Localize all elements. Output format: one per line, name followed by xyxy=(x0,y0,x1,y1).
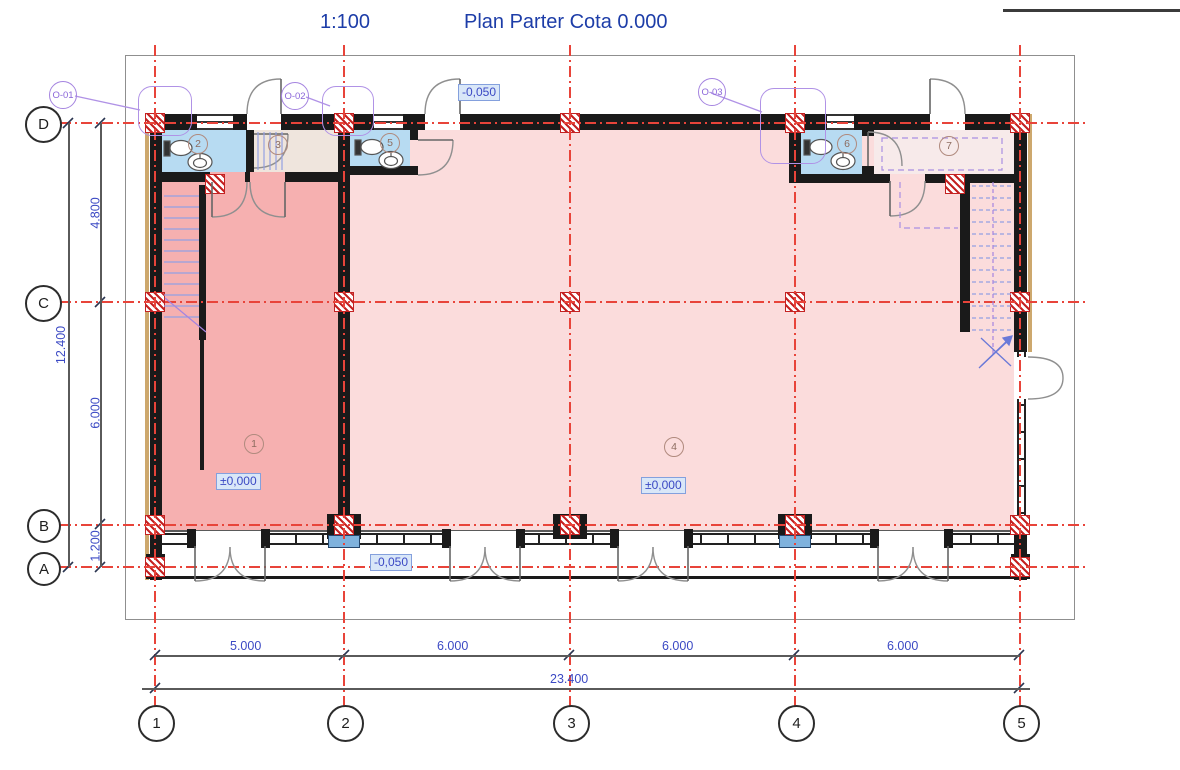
wall-porch-bottom xyxy=(150,576,1027,579)
door-gap-porch-1 xyxy=(195,531,265,547)
door-gap-right xyxy=(1016,357,1027,399)
wall-stair-left-thin xyxy=(200,340,204,470)
dim-line-left-outer xyxy=(68,123,70,567)
wall-room2-3-divider xyxy=(246,130,254,172)
grid-bubble-4: 4 xyxy=(778,705,815,742)
plan-scale: 1:100 xyxy=(320,11,370,34)
top-right-rule xyxy=(1003,9,1180,12)
wall-room5-bottom xyxy=(350,166,418,175)
wall-stair-left-thick xyxy=(199,185,206,340)
elevation-label-top: -0,050 xyxy=(458,84,500,101)
door-jamb xyxy=(944,529,953,548)
window-tag-O03: O-03 xyxy=(698,78,726,106)
dim-line-bottom-outer xyxy=(142,688,1030,690)
grid-bubble-A: A xyxy=(27,552,61,586)
grid-bubble-1: 1 xyxy=(138,705,175,742)
elevation-label-porch: -0,050 xyxy=(370,554,412,571)
window-tag-box-3 xyxy=(760,88,826,164)
wall-room5-right xyxy=(410,130,418,140)
wall-room6-7-divider xyxy=(862,130,874,136)
wall-wc-bottom xyxy=(285,172,350,182)
elevation-label-room4: ±0,000 xyxy=(641,477,686,494)
dim-left-total: 12.400 xyxy=(54,326,68,364)
dim-left-1: 4.800 xyxy=(89,197,103,228)
wall-room67-bottom xyxy=(789,174,890,183)
room-label-7: 7 xyxy=(939,136,959,156)
elevation-label-room1: ±0,000 xyxy=(216,473,261,490)
room-5-floor xyxy=(350,130,410,170)
door-jamb xyxy=(261,529,270,548)
column xyxy=(945,174,965,194)
grid-line-B xyxy=(60,524,1085,526)
window-tag-O02: O-02 xyxy=(281,82,309,110)
room-label-1: 1 xyxy=(244,434,264,454)
grid-bubble-B: B xyxy=(27,509,61,543)
grid-line-2 xyxy=(343,45,345,707)
grid-bubble-3: 3 xyxy=(553,705,590,742)
dim-bottom-total: 23.400 xyxy=(550,672,588,686)
door-gap-porch-2 xyxy=(450,531,520,547)
door-jamb xyxy=(610,529,619,548)
dim-left-3: 1.200 xyxy=(89,530,103,561)
dim-bottom-3: 6.000 xyxy=(662,639,693,653)
door-jamb xyxy=(516,529,525,548)
wall-stair-right xyxy=(960,176,970,332)
column xyxy=(205,174,225,194)
grid-line-1 xyxy=(154,45,156,707)
wall-left xyxy=(150,114,162,580)
door-gap-porch-3 xyxy=(618,531,688,547)
wall-room6-7-divider xyxy=(862,166,874,183)
floor-plan-canvas: 1:100 Plan Parter Cota 0.000 xyxy=(0,0,1180,770)
room-label-3: 3 xyxy=(268,135,288,155)
room-4-floor xyxy=(350,130,1014,532)
room-3-floor xyxy=(254,130,338,172)
door-jamb xyxy=(870,529,879,548)
window-tag-box-2 xyxy=(322,86,374,136)
door-jamb xyxy=(684,529,693,548)
grid-line-5 xyxy=(1019,45,1021,707)
room-label-5: 5 xyxy=(380,133,400,153)
door-jamb xyxy=(442,529,451,548)
dim-bottom-4: 6.000 xyxy=(887,639,918,653)
wall-wc-bottom xyxy=(162,172,210,182)
insulation-right xyxy=(1028,114,1032,352)
room-label-2: 2 xyxy=(188,134,208,154)
insulation-left xyxy=(145,114,149,580)
grid-line-A xyxy=(60,566,1085,568)
dim-line-bottom-inner xyxy=(155,655,1020,657)
grid-bubble-5: 5 xyxy=(1003,705,1040,742)
room-label-4: 4 xyxy=(664,437,684,457)
dim-bottom-2: 6.000 xyxy=(437,639,468,653)
grid-line-D xyxy=(60,122,1085,124)
dim-line-left-inner xyxy=(100,123,102,567)
room-label-6: 6 xyxy=(837,134,857,154)
room-1-floor xyxy=(162,130,338,532)
grid-bubble-2: 2 xyxy=(327,705,364,742)
grid-bubble-C: C xyxy=(25,285,62,322)
window-tag-O01: O-01 xyxy=(49,81,77,109)
door-jamb xyxy=(187,529,196,548)
door-gap-porch-4 xyxy=(878,531,948,547)
wall-wc-bottom xyxy=(245,172,250,182)
plan-title: Plan Parter Cota 0.000 xyxy=(464,11,667,34)
grid-line-3 xyxy=(569,45,571,707)
dim-left-2: 6.000 xyxy=(89,397,103,428)
dim-bottom-1: 5.000 xyxy=(230,639,261,653)
grid-bubble-D: D xyxy=(25,106,62,143)
grid-line-C xyxy=(60,301,1085,303)
window-tag-box-1 xyxy=(138,86,192,136)
